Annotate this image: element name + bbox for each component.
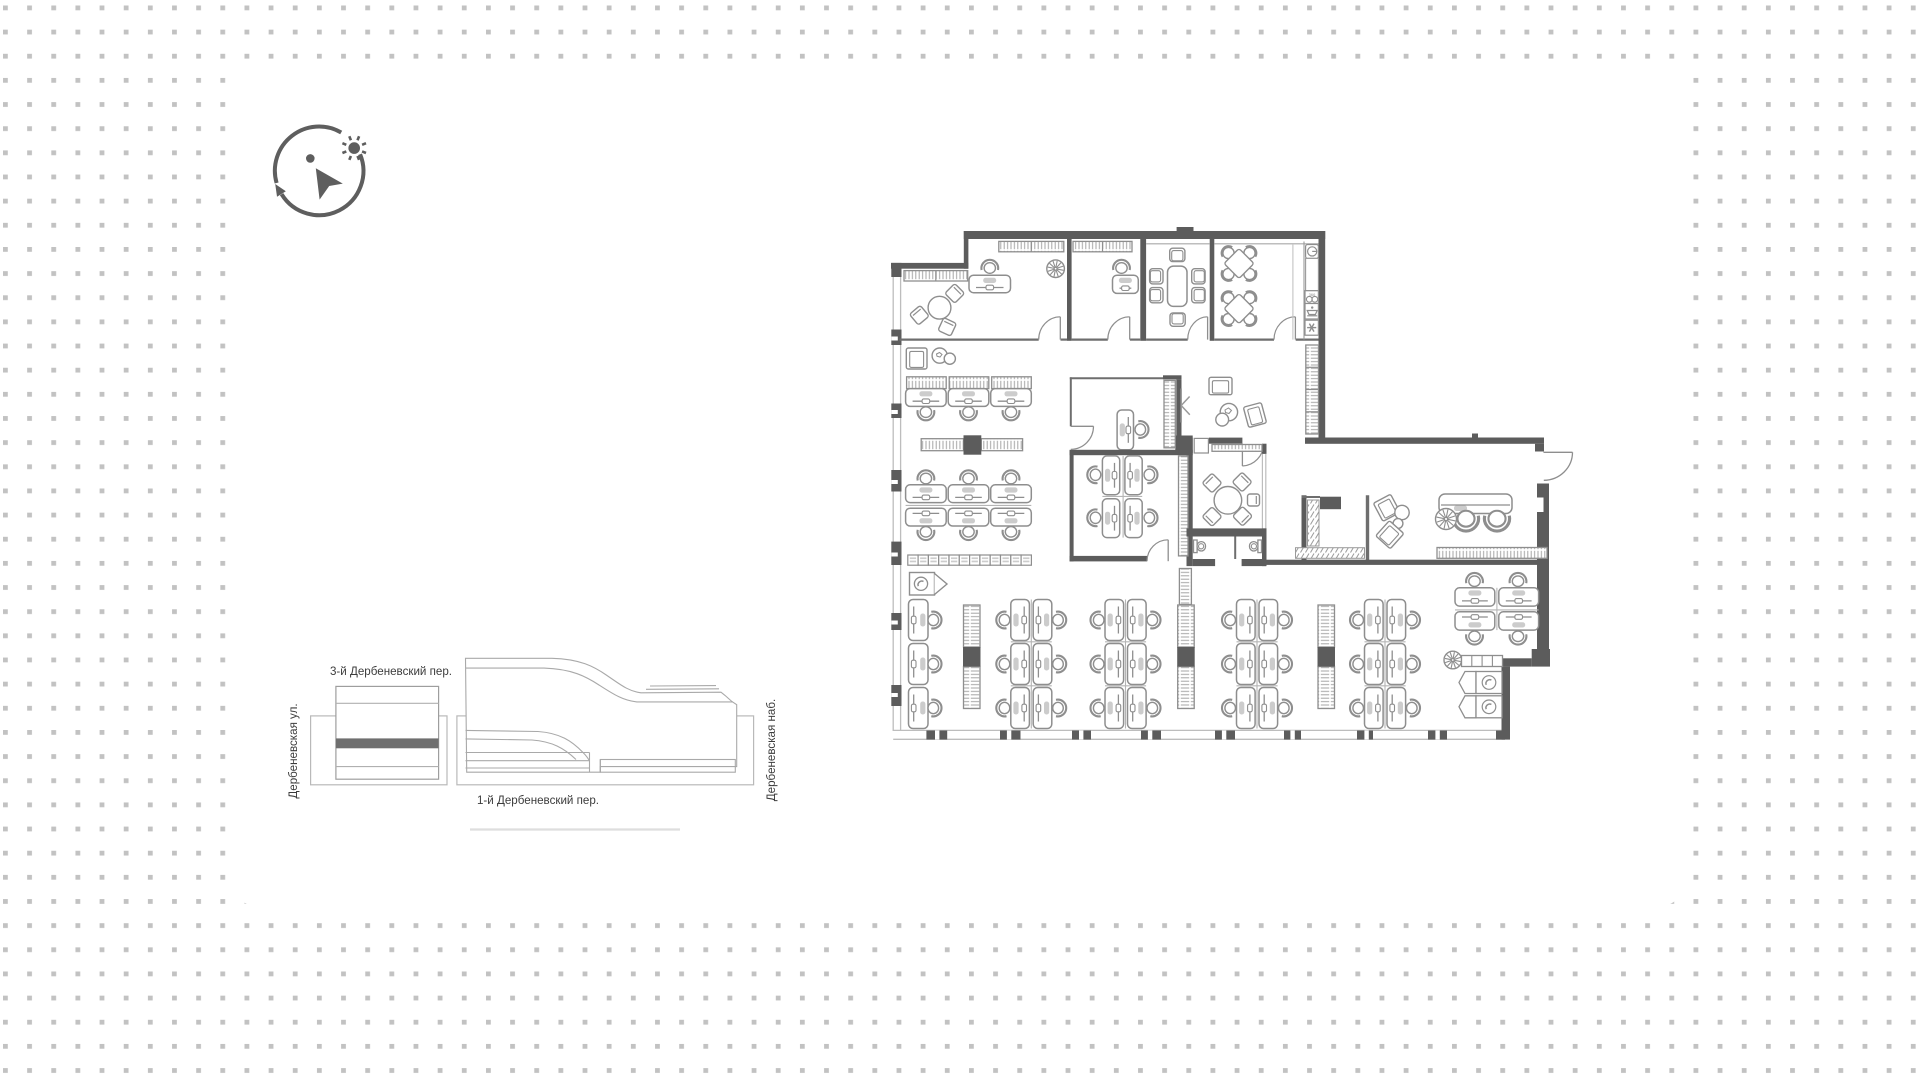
svg-text:366: 366 xyxy=(1309,292,1316,297)
svg-text:3-й Дербеневский пер.: 3-й Дербеневский пер. xyxy=(330,665,452,678)
svg-text:Дербеневская наб.: Дербеневская наб. xyxy=(765,699,778,801)
svg-text:Дербеневская ул.: Дербеневская ул. xyxy=(287,703,300,798)
svg-text:1-й Дербеневский пер.: 1-й Дербеневский пер. xyxy=(477,794,599,807)
